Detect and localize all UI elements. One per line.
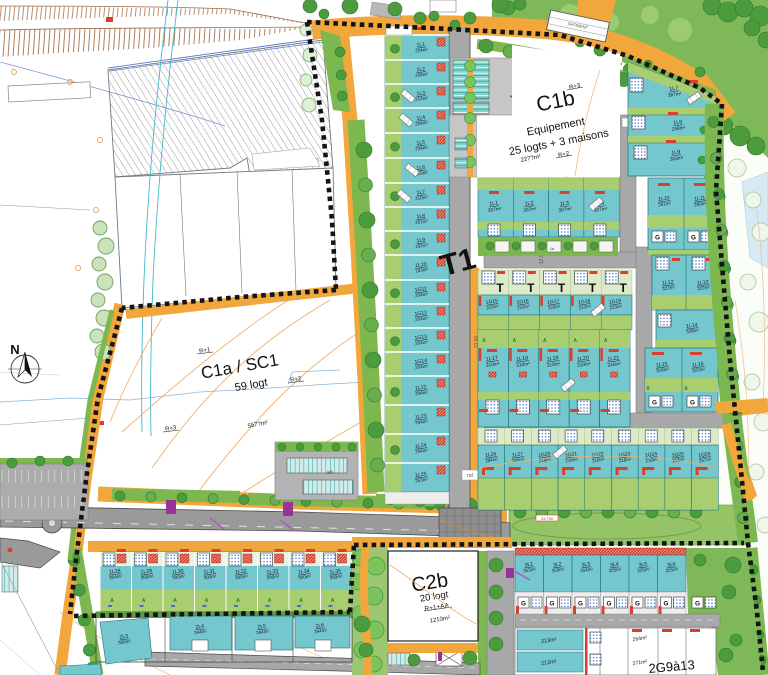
svg-text:A: A — [684, 386, 688, 392]
svg-text:1a: 1a — [550, 246, 555, 251]
svg-text:A: A — [543, 338, 547, 344]
svg-text:T: T — [558, 281, 566, 295]
svg-text:G: G — [550, 600, 555, 607]
svg-text:A: A — [482, 338, 486, 344]
svg-text:nd: nd — [467, 473, 473, 479]
svg-text:A: A — [573, 338, 577, 344]
svg-text:A: A — [173, 598, 177, 604]
svg-text:T: T — [589, 281, 597, 295]
svg-text:G: G — [691, 234, 696, 241]
svg-text:G: G — [664, 600, 669, 607]
svg-text:N: N — [10, 342, 19, 357]
svg-text:A: A — [646, 386, 650, 392]
svg-text:A: A — [331, 598, 335, 604]
svg-text:G: G — [635, 600, 640, 607]
svg-text:G: G — [655, 234, 660, 241]
svg-text:2G9à13: 2G9à13 — [648, 657, 695, 675]
svg-text:G: G — [607, 600, 612, 607]
svg-text:A: A — [513, 338, 517, 344]
svg-text:A: A — [268, 598, 272, 604]
svg-text:G: G — [690, 399, 695, 406]
svg-text:A: A — [142, 598, 146, 604]
svg-text:43.750: 43.750 — [541, 516, 554, 521]
svg-text:G: G — [521, 600, 526, 607]
svg-text:G: G — [652, 399, 657, 406]
svg-text:A: A — [236, 598, 240, 604]
svg-text:T: T — [527, 281, 535, 295]
svg-text:A: A — [110, 598, 114, 604]
svg-text:G: G — [578, 600, 583, 607]
svg-text:T: T — [620, 281, 628, 295]
svg-text:A: A — [604, 338, 608, 344]
svg-text:A: A — [299, 598, 303, 604]
svg-text:-aK-: -aK- — [325, 470, 335, 476]
svg-text:A: A — [205, 598, 209, 604]
svg-text:G: G — [695, 600, 700, 607]
svg-text:T: T — [496, 281, 504, 295]
